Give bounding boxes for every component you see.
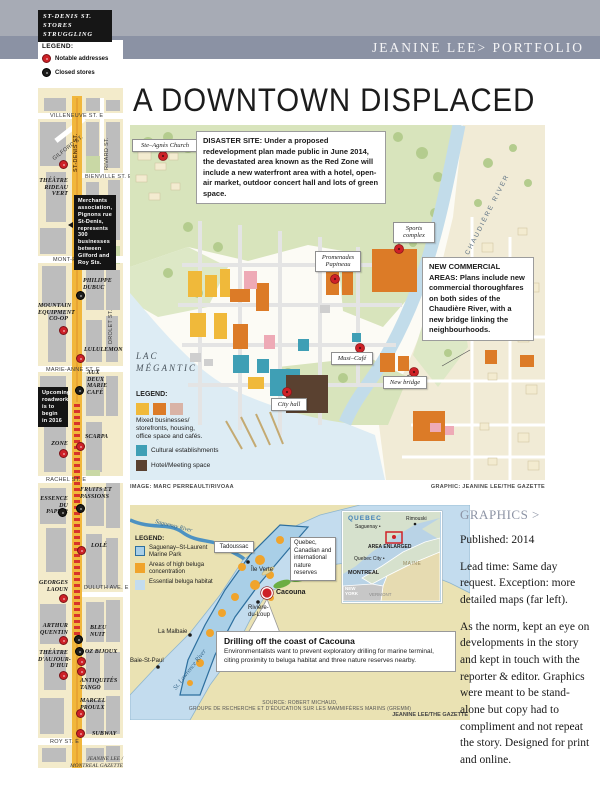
reserves-note: Quebec, Canadian and international natur…: [290, 537, 336, 581]
notable-dot-icon: [76, 729, 85, 738]
closed-dot-icon: [76, 504, 85, 513]
label-riviere-du-loup: Rivière- du-Loup: [248, 605, 270, 618]
megantic-legend: LEGEND: Mixed businesses/ storefronts, h…: [136, 391, 256, 471]
inset-area-enlarged: AREA ENLARGED: [368, 545, 411, 551]
area-enlarged-dot-icon: [392, 535, 396, 539]
inset-quebec-city: Quebec City •: [354, 557, 385, 563]
store-marcel-proulx: MARCEL PROULX: [80, 698, 106, 711]
label-la-malbaie: La Malbaie: [158, 629, 187, 636]
legend-mixed-label: Mixed businesses/ storefronts, housing, …: [136, 417, 256, 441]
label-new-bridge: New bridge: [383, 376, 427, 389]
page-title: A DOWNTOWN DISPLACED: [133, 84, 535, 116]
cacouna-map: Saguenay River LEGEND: Saguenay–St-Laure…: [130, 505, 470, 720]
image-credit: IMAGE: MARC PERREAULT/RIVOAA: [130, 484, 234, 491]
legend-beluga: Areas of high beluga concentration: [135, 562, 240, 576]
graphic-credit: GRAPHIC: JEANINE LEE/THE GAZETTE: [365, 484, 545, 491]
inset-vermont: VERMONT: [369, 593, 392, 598]
inset-montreal: MONTREAL: [348, 570, 379, 576]
inset-maine: MAINE: [403, 562, 421, 568]
mixed-swatches: [136, 403, 256, 415]
megantic-map: Ste–Agnès Church DISASTER SITE: Under a …: [130, 125, 545, 480]
street-bienville: BIENVILLE ST. E: [85, 175, 132, 181]
store-lululemon: LULULEMON: [84, 347, 123, 354]
swatch-teal-icon: [136, 445, 147, 456]
store-lole: LOLÉ: [91, 543, 107, 550]
closed-dot-icon: [58, 508, 67, 517]
store-subway: SUBWAY: [92, 731, 117, 738]
sidebar-credit: JEANINE LEE / MONTREAL GAZETTE: [66, 756, 123, 770]
legend-habitat: Essential beluga habitat: [135, 579, 240, 590]
legend-cultural: Cultural establishments: [136, 445, 256, 456]
closed-dot-icon: [42, 68, 51, 77]
street-villeneuve: VILLENEUVE ST. E: [50, 114, 103, 120]
swatch-habitat-icon: [135, 580, 145, 590]
merchants-note: Merchants association, Pignons rue St-De…: [74, 195, 116, 270]
notable-dot-icon: [59, 160, 68, 169]
notable-dot-icon: [76, 442, 85, 451]
swatch-brown-icon: [136, 460, 147, 471]
inset-new-york: NEW YORK: [345, 587, 358, 597]
inset-quebec: QUEBEC: [348, 515, 382, 522]
notable-dot-icon: [59, 594, 68, 603]
process-paragraph: As the norm, kept an eye on developments…: [460, 619, 590, 769]
store-zone: ZONE: [44, 441, 68, 448]
store-fruits-et-passions: FRUITS ET PASSIONS: [80, 487, 112, 500]
store-philippe-dubuc: PHILIPPE DUBUC: [83, 278, 112, 291]
swatch-orange-icon: [153, 403, 166, 415]
street-duluth: DULUTH AVE. E: [84, 586, 129, 592]
street-rivard: RIVARD ST.: [105, 137, 111, 170]
store-bleu-nuit: BLEU NUIT: [90, 625, 106, 638]
store-georges-laoun: GEORGES LAOUN: [38, 580, 68, 593]
legend-cultural-label: Cultural establishments: [151, 447, 219, 454]
street-rachel: RACHEL ST. E: [46, 478, 86, 484]
swatch-pink-icon: [170, 403, 183, 415]
swatch-park-icon: [135, 546, 145, 556]
notable-dot-icon: [77, 546, 86, 555]
legend-habitat-label: Essential beluga habitat: [149, 579, 213, 586]
inset-saguenay: Saguenay •: [355, 525, 381, 531]
roadwork-note: Upcoming roadwork is to begin in 2016: [38, 387, 68, 427]
label-musi-cafe: Musi–Café: [331, 352, 373, 365]
notes-column: GRAPHICS > Published: 2014 Lead time: Sa…: [460, 506, 590, 779]
sidebar-map-title: ST-DENIS ST. STORES STRUGGLING: [38, 10, 112, 42]
cacouna-dot-icon: [262, 588, 271, 597]
small-map-credit: JEANINE LEE/THE GAZETTE: [310, 713, 468, 719]
closed-dot-icon: [75, 386, 84, 395]
legend-hotel: Hotel/Meeting space: [136, 460, 256, 471]
notable-dot-icon: [59, 326, 68, 335]
notable-dot-icon: [76, 354, 85, 363]
area-enlarged-inset: QUEBEC Saguenay • Rimouski AREA ENLARGED…: [342, 511, 442, 603]
notable-dot-icon: [42, 54, 51, 63]
store-arthur-quentin: ARTHUR QUENTIN: [38, 623, 68, 636]
store-theatre-rideau-vert: THÉÂTRE RIDEAU VERT: [38, 178, 68, 198]
notable-dot-icon: [59, 449, 68, 458]
label-promenades-papineau: Promenades Papineau: [315, 251, 361, 272]
street-stdenis: ST-DENIS ST.: [74, 134, 80, 172]
store-scarpa: SCARPA: [85, 434, 108, 441]
closed-dot-icon: [74, 635, 83, 644]
swatch-beluga-icon: [135, 563, 145, 573]
inset-rimouski: Rimouski: [406, 517, 427, 523]
legend-hotel-label: Hotel/Meeting space: [151, 462, 210, 469]
closed-dot-icon: [75, 647, 84, 656]
sidebar-legend-heading: LEGEND:: [42, 44, 73, 51]
notable-dot-icon: [77, 667, 86, 676]
notable-dot-icon: [59, 636, 68, 645]
label-ile-verte: Île Verte: [251, 567, 273, 574]
store-aux-deux-marie: AUX DEUX MARIE CAFÉ: [87, 370, 107, 397]
label-city-hall: City hall: [271, 398, 307, 411]
lead-time-paragraph: Lead time: Same day request. Exception: …: [460, 559, 590, 609]
store-theatre-aujourdhui: THÉÂTRE D'AUJOUR- D'HUI: [38, 650, 68, 670]
closed-dot-icon: [76, 291, 85, 300]
store-antiquites-tango: ANTIQUITÉS TANGO: [80, 678, 117, 691]
graphics-heading: GRAPHICS >: [460, 506, 590, 525]
street-roy: ROY ST. E: [50, 740, 79, 746]
legend-closed-label: Closed stores: [55, 70, 95, 76]
label-tadoussac: Tadoussac: [214, 541, 254, 553]
label-baie-st-paul: Baie-St-Paul: [130, 658, 164, 665]
drilling-heading: Drilling off the coast of Cacouna: [224, 636, 448, 646]
notable-dot-icon: [76, 709, 85, 718]
drilling-callout: Drilling off the coast of Cacouna Enviro…: [216, 631, 456, 672]
source-line: SOURCE: ROBERT MICHAUD, GROUPE DE RECHER…: [140, 700, 460, 712]
legend-notable-label: Notable addresses: [55, 56, 108, 62]
disaster-site-callout: DISASTER SITE: Under a proposed redevelo…: [196, 131, 386, 204]
store-mec: MOUNTAIN EQUIPMENT CO-OP: [38, 303, 68, 323]
notable-dot-icon: [77, 657, 86, 666]
arrow-left-icon: [68, 222, 73, 228]
legend-park-label: Saguenay–St-Laurent Marine Park: [149, 545, 207, 559]
published-line: Published: 2014: [460, 532, 590, 549]
label-cacouna: Cacouna: [276, 589, 306, 597]
notable-dot-icon: [59, 671, 68, 680]
label-lac-megantic: LAC MÉGANTIC: [136, 351, 197, 374]
street-drolet: DROLET ST.: [109, 309, 115, 344]
label-sports-complex: Sports complex: [393, 222, 435, 243]
drilling-body: Environmentalists want to prevent explor…: [224, 648, 442, 666]
swatch-yellow-icon: [136, 403, 149, 415]
commercial-areas-callout: NEW COMMERCIAL AREAS: Plans include new …: [422, 257, 534, 341]
stdenis-strip-map: ST-DENIS ST. STORES STRUGGLING LEGEND: N…: [38, 10, 123, 772]
legend-heading: LEGEND:: [136, 391, 256, 400]
legend-beluga-label: Areas of high beluga concentration: [149, 562, 240, 576]
label-ste-agnes-church: Ste–Agnès Church: [132, 139, 198, 152]
store-oz-bijoux: OZ BIJOUX: [85, 649, 117, 656]
